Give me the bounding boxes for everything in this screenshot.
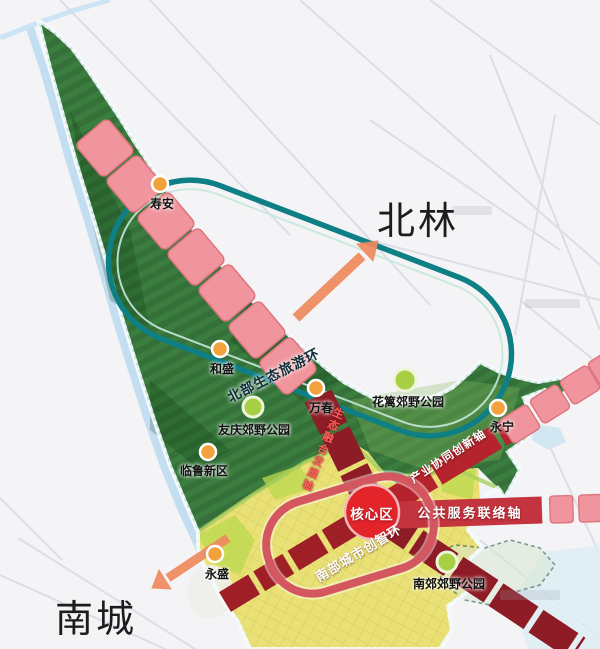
town-label-hesheng: 和盛 (210, 360, 234, 377)
town-dot-hesheng (212, 341, 228, 357)
park-label-huali: 花篱郊野公园 (372, 393, 444, 410)
map-canvas (0, 0, 600, 649)
town-dot-yongsheng (207, 546, 223, 562)
park-dot-huali (394, 369, 416, 391)
zone-label-south: 南城 (55, 588, 137, 643)
park-label-nanjiao: 南郊郊野公园 (413, 575, 485, 592)
town-dot-wanchun (308, 380, 324, 396)
town-label-linlu: 临鲁新区 (180, 462, 228, 479)
park-label-youqing: 友庆郊野公园 (218, 421, 290, 438)
town-label-shouan: 寿安 (150, 195, 174, 212)
zone-label-north: 北林 (377, 190, 459, 245)
town-label-yongning: 永宁 (490, 418, 514, 435)
park-dot-youqing (243, 397, 263, 417)
town-dot-shouan (152, 176, 168, 192)
northeast-arrow-shaft (296, 256, 362, 318)
town-label-yongsheng: 永盛 (205, 565, 229, 582)
park-dot-nanjiao (437, 552, 457, 572)
town-dot-linlu (200, 444, 216, 460)
service-axis-label: 公共服务联络轴 (417, 503, 522, 522)
planning-map: 北林 南城 寿安 和盛 万春 临鲁新区 永宁 永盛 友庆郊野公园 花篱郊野公园 … (0, 0, 600, 649)
core-area-label: 核心区 (350, 503, 394, 523)
town-dot-yongning (490, 400, 506, 416)
